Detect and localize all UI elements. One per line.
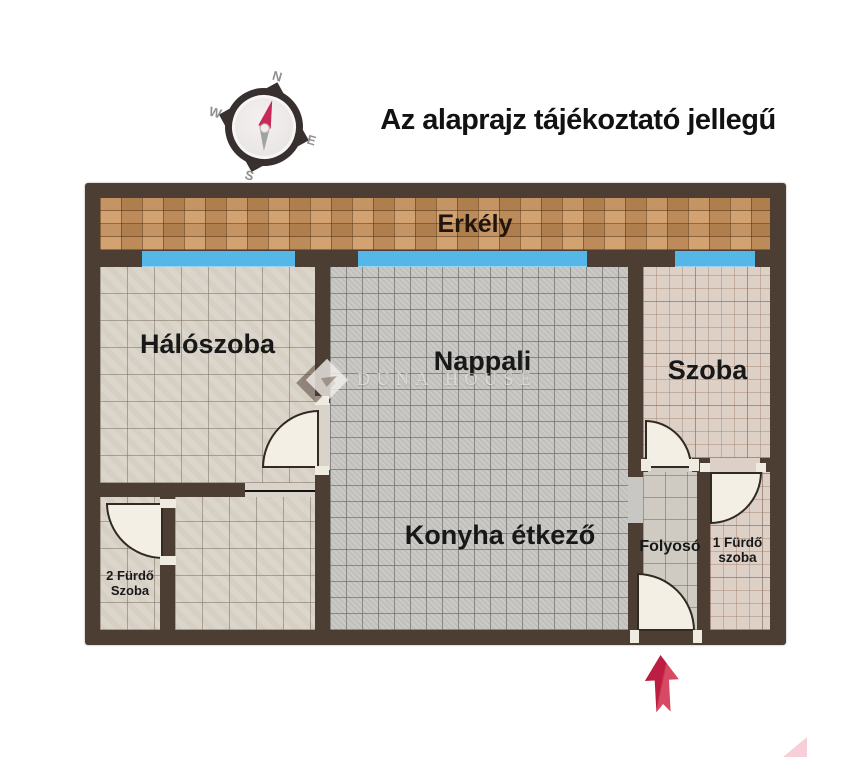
room-label-bathroom-1-line2: szoba	[718, 550, 756, 565]
door-post	[160, 556, 176, 565]
room-label-bathroom-2: 2 Fürdő Szoba	[100, 568, 160, 598]
door-post	[756, 463, 766, 472]
opening-lintel-line	[245, 490, 315, 492]
door-post	[700, 463, 710, 472]
floorplan-canvas: N E S W Az alaprajz tájékoztató jellegű …	[0, 0, 844, 768]
compass-label-east: E	[305, 132, 317, 149]
room-kitchen-annex	[175, 497, 315, 630]
floorplan: Erkély	[85, 183, 786, 645]
room-label-bedroom: Hálószoba	[115, 329, 300, 360]
door-post	[693, 630, 702, 643]
opening-bathroom1-door	[710, 458, 760, 472]
window-bedroom	[142, 251, 295, 268]
room-label-bathroom-1: 1 Fürdő szoba	[705, 535, 770, 565]
opening-kitchen-hallway	[628, 477, 643, 523]
door-post	[630, 630, 639, 643]
room-label-bathroom-1-line1: 1 Fürdő	[713, 535, 763, 550]
compass-rose-icon: N E S W	[202, 65, 326, 189]
compass-label-south: S	[243, 167, 255, 184]
opening-bedroom-annex	[245, 483, 315, 497]
room-label-balcony: Erkély	[285, 199, 665, 249]
entrance-arrow-icon	[644, 654, 681, 713]
door-post	[315, 396, 329, 405]
room-label-hallway: Folyosó	[637, 538, 703, 556]
room-living-kitchen	[330, 267, 628, 630]
room-label-kitchen: Konyha étkező	[385, 520, 615, 551]
door-post	[160, 499, 176, 508]
compass-label-north: N	[271, 68, 284, 85]
room-label-room: Szoba	[655, 355, 760, 386]
watermark-fragment	[783, 737, 807, 757]
room-label-bathroom-2-line2: Szoba	[111, 583, 149, 598]
page-title: Az alaprajz tájékoztató jellegű	[368, 104, 788, 137]
room-label-living: Nappali	[405, 346, 560, 377]
window-room	[675, 251, 755, 268]
door-post	[689, 459, 699, 471]
door-post	[315, 466, 329, 475]
door-post	[641, 459, 651, 471]
compass-rotated-group: N E S W	[187, 50, 340, 203]
window-living	[358, 251, 587, 268]
room-label-bathroom-2-line1: 2 Fürdő	[106, 568, 154, 583]
